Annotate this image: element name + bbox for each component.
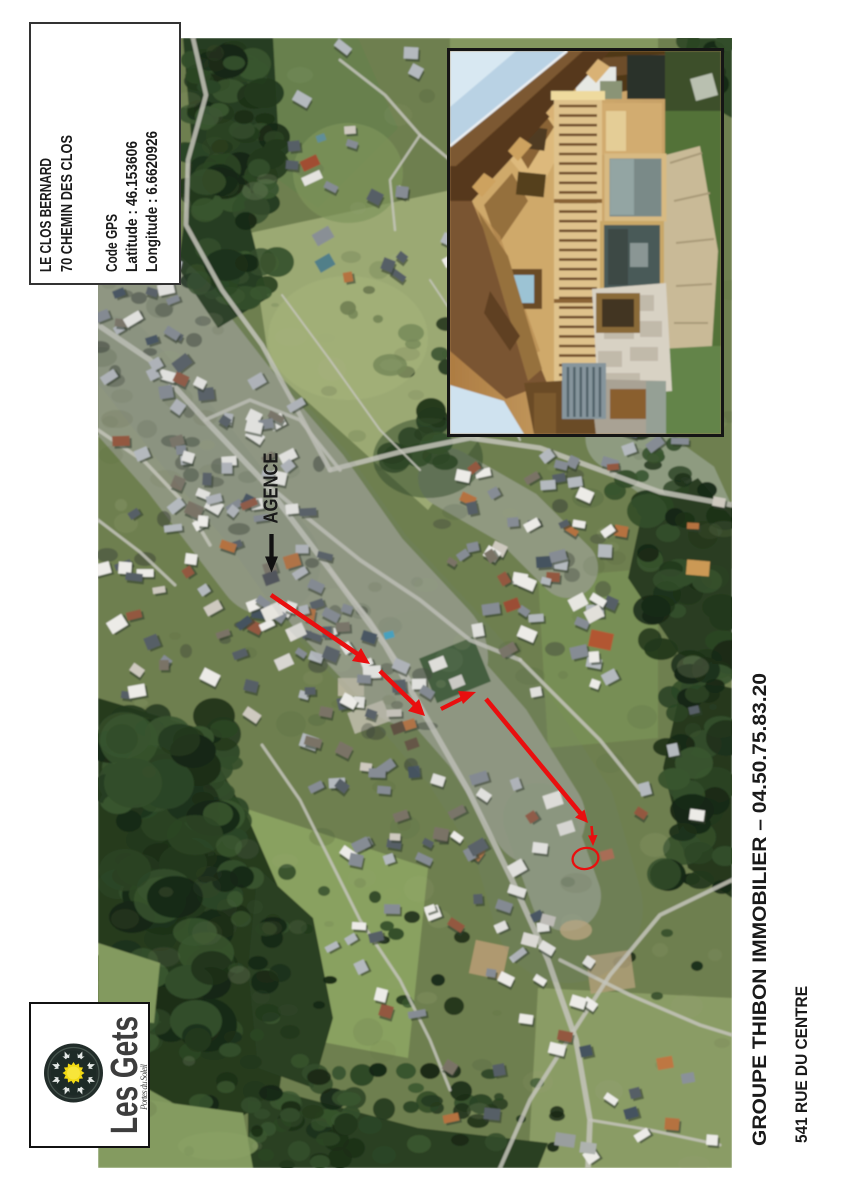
svg-text:Latitude : 46.153606: Latitude : 46.153606: [124, 141, 141, 272]
svg-text:Code GPS: Code GPS: [104, 214, 121, 272]
svg-text:541 RUE DU CENTRE: 541 RUE DU CENTRE: [793, 986, 811, 1143]
svg-text:GROUPE THIBON IMMOBILIER – 04.: GROUPE THIBON IMMOBILIER – 04.50.75.83.2…: [750, 673, 771, 1146]
svg-text:70 CHEMIN DES CLOS: 70 CHEMIN DES CLOS: [59, 135, 76, 272]
svg-text:AGENCE: AGENCE: [261, 453, 283, 524]
svg-text:Longitude : 6.6620926: Longitude : 6.6620926: [144, 131, 161, 272]
svg-text:LE CLOS BERNARD: LE CLOS BERNARD: [38, 158, 55, 272]
